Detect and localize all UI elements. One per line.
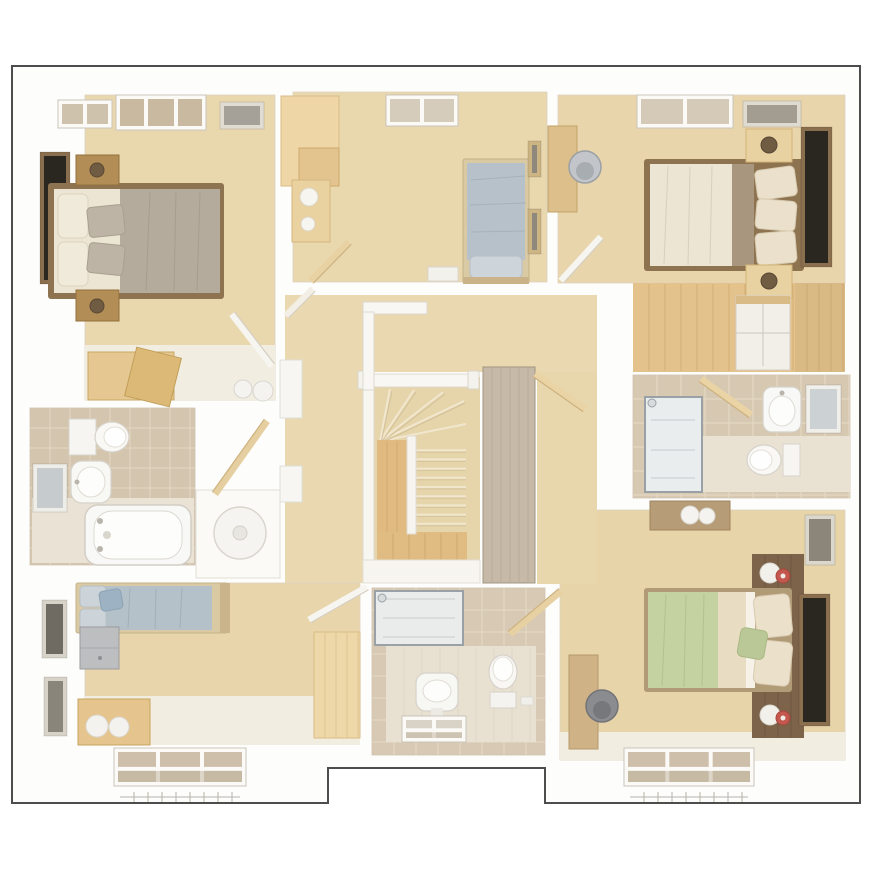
lamp-tl-lower xyxy=(90,299,104,313)
landing-radiator-upper xyxy=(280,360,302,418)
chair-master-seat xyxy=(593,701,611,719)
lamp-tr-lower xyxy=(761,273,777,289)
lamp-tl-upper xyxy=(90,163,104,177)
tap-bathroom-left xyxy=(75,480,80,485)
cushion-bl-1 xyxy=(86,715,108,737)
lamp-tm-small xyxy=(301,217,315,231)
chair-top-right-seat xyxy=(576,162,594,180)
stair-top-rail xyxy=(361,374,477,387)
shower-head-ensuite xyxy=(648,399,656,407)
window-bottom-left xyxy=(114,748,246,786)
bathtub-tap-2 xyxy=(97,546,103,552)
toilet-roll-bottom xyxy=(521,697,533,705)
window-top-middle xyxy=(386,95,458,126)
bench-single-top xyxy=(428,267,458,281)
toilet-cistern-bottom xyxy=(490,692,516,708)
pillow-taupe-2 xyxy=(87,242,126,276)
pillow-tr-3 xyxy=(755,230,798,265)
wall-picture-tm-1 xyxy=(528,141,541,177)
towel-roll-2 xyxy=(699,508,715,524)
wall-picture-master xyxy=(805,515,835,565)
bed-duvet-top-right xyxy=(650,164,732,266)
toilet-cistern-ensuite xyxy=(783,444,800,476)
bathtub-tap-1 xyxy=(97,518,103,524)
toilet-seat-ensuite xyxy=(750,450,772,470)
pillow-single-top xyxy=(470,256,522,278)
floor-plan-canvas xyxy=(0,0,872,872)
lamp-tr-upper xyxy=(761,137,777,153)
bed-foot-single-top xyxy=(463,277,529,284)
wall-art-top-right xyxy=(743,101,801,127)
stair-newel-right xyxy=(468,371,479,389)
laundry-basket-2 xyxy=(253,381,273,401)
wall-picture-tm-2 xyxy=(528,209,541,254)
floor-plan-render xyxy=(0,0,872,872)
shower-head-bottom xyxy=(378,594,386,602)
stairwell-wood-landing xyxy=(377,532,467,562)
wardrobe-strip-top-right xyxy=(795,283,845,372)
pillow-master-green xyxy=(737,627,769,660)
bed-foot-bottom-left xyxy=(220,583,230,633)
bed-duvet-green-master xyxy=(648,592,718,688)
towel-roll-1 xyxy=(681,506,699,524)
tap-ensuite xyxy=(780,391,785,396)
floor-landing-upper xyxy=(285,295,597,372)
water-cylinder-cap xyxy=(233,526,247,540)
laundry-basket-1 xyxy=(234,380,252,398)
bathtub-drain xyxy=(103,531,111,539)
toilet-seat-left xyxy=(104,427,126,447)
stair-left-rail xyxy=(363,387,374,564)
bed-duvet-single-top xyxy=(467,163,525,260)
wall-picture-bl-1 xyxy=(42,600,67,658)
bed-runner-top-right xyxy=(732,164,754,266)
window-master xyxy=(624,748,754,786)
landing-half-wall-return xyxy=(363,312,374,390)
window-bathroom-bottom xyxy=(402,716,466,742)
floor-corridor xyxy=(537,372,597,584)
pillow-taupe-1 xyxy=(87,204,126,238)
mirror-ensuite xyxy=(806,385,841,433)
mirror-bedroom-top-right xyxy=(801,127,832,267)
pillow-white-1 xyxy=(58,194,88,238)
sink-basin-left xyxy=(77,467,105,497)
wall-art-top-left xyxy=(220,102,264,129)
toilet-seat-bottom xyxy=(493,657,513,681)
sink-basin-bottom xyxy=(423,680,451,702)
sink-ensuite-basin xyxy=(769,396,795,426)
stair-bottom-wall xyxy=(363,560,480,583)
window-top-right xyxy=(637,95,733,128)
pillow-tr-2 xyxy=(755,198,797,231)
landing-radiator-lower xyxy=(280,466,302,502)
mirror-bathroom-left xyxy=(33,464,67,512)
pillow-tr-1 xyxy=(754,165,798,200)
window-tl-small xyxy=(58,100,112,128)
wall-picture-bl-2 xyxy=(44,677,67,736)
lamp-tm-large xyxy=(300,188,318,206)
flower-master-lower-center xyxy=(781,716,786,721)
stair-stringer xyxy=(407,436,416,534)
toilet-cistern-left xyxy=(69,419,96,455)
chest-drawers-top-edge xyxy=(736,296,790,304)
wardrobe-bottom-left xyxy=(314,632,360,738)
flower-master-upper-center xyxy=(781,574,786,579)
cushion-bl-2 xyxy=(109,717,129,737)
pillow-bl-accent xyxy=(98,588,123,612)
mirror-master xyxy=(799,594,830,726)
bed-duvet-top-left xyxy=(120,189,220,293)
landing-wardrobe xyxy=(483,367,535,583)
window-tl-large xyxy=(116,95,206,130)
nightstand-bl-knob xyxy=(98,656,102,660)
pillow-white-2 xyxy=(58,242,88,286)
